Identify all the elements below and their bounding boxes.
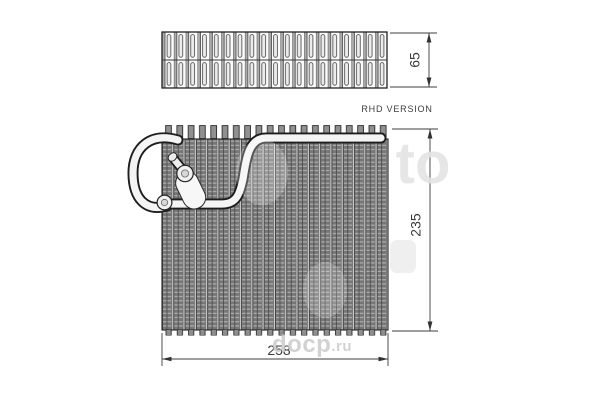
- watermark-site-suffix: .ru: [331, 338, 352, 355]
- watermark-letter-fragment: [390, 240, 416, 273]
- arrowhead-right-icon: [379, 357, 389, 362]
- dim-label-core-height: 235: [408, 213, 424, 237]
- arrowhead-left-icon: [162, 357, 172, 362]
- watermark-blob: [303, 262, 347, 318]
- upper-port-opening: [181, 170, 188, 177]
- dim-top-height: 65: [390, 33, 437, 87]
- dim-label-top-height: 65: [407, 52, 423, 68]
- rhd-version-label: RHD VERSION: [361, 104, 432, 114]
- watermark-big-text: to: [396, 131, 451, 196]
- lower-port-opening: [161, 199, 167, 205]
- arrowhead-up-icon: [427, 33, 432, 43]
- arrowhead-down-icon: [428, 322, 433, 332]
- evaporator-catalog-image: 65 RHD VERSION 235: [0, 0, 600, 400]
- arrowhead-down-icon: [427, 78, 432, 88]
- evaporator-technical-drawing: 65 RHD VERSION 235: [0, 0, 600, 400]
- top-view: [162, 32, 387, 88]
- watermark-blob: [236, 139, 288, 205]
- watermark-site-name: docp: [272, 331, 331, 358]
